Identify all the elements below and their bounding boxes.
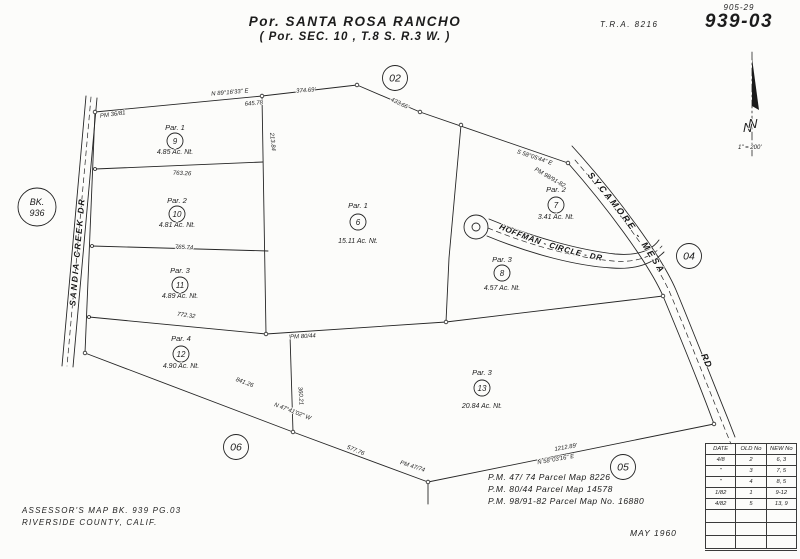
parcel-name: Par. 3: [492, 255, 513, 264]
road-sycamore-mesa-linework: [568, 146, 735, 444]
revision-cell: 4/8: [706, 455, 736, 466]
dimension-label: PM 80/44: [290, 333, 317, 340]
revision-cell-empty: [706, 523, 736, 536]
parcel-acreage: 4.57 Ac. Nt.: [484, 285, 520, 292]
dimension-label: 1212.89': [554, 443, 578, 453]
dimension-label: 360.21: [296, 387, 303, 406]
revision-col-header: NEW No: [766, 444, 796, 455]
revision-row-empty: [706, 536, 797, 550]
revision-cell-empty: [736, 536, 766, 550]
dimension-label: PM 36/81: [100, 110, 126, 120]
map-book-page-number: 939-03: [683, 11, 795, 33]
book-ref-number: 936: [29, 208, 44, 218]
parcel-name: Par. 2: [167, 196, 188, 205]
revision-cell-empty: [706, 536, 736, 550]
assessor-map-page: N N 1" = 200' Par. 194.85 Ac. Nt.Par. 21…: [0, 0, 800, 559]
parcel-number: 12: [177, 350, 186, 359]
revision-cell: 8, 5: [766, 477, 796, 488]
revision-row-empty: [706, 523, 797, 536]
parcel-number: 13: [478, 384, 487, 393]
parcel-acreage: 3.41 Ac. Nt.: [538, 214, 574, 221]
page-ref-number: 02: [389, 73, 401, 85]
revision-row: "37, 5: [706, 466, 797, 477]
revision-cell: 7, 5: [766, 466, 796, 477]
north-arrow: N N 1" = 200': [738, 52, 762, 158]
page-ref-number: 04: [683, 251, 695, 263]
dimension-label: 841.26: [235, 377, 255, 389]
dimension-label: PM 47/74: [399, 460, 426, 474]
page-ref-number: 06: [230, 442, 242, 454]
revision-cell: 5: [736, 499, 766, 510]
map-drawing: N N 1" = 200' Par. 194.85 Ac. Nt.Par. 21…: [0, 0, 800, 559]
road-name: HOFFMAN - CIRCLE - DR: [498, 222, 603, 262]
dimension-label: 645.78: [245, 100, 264, 108]
book-ref-circle: [18, 188, 56, 226]
revision-cell: 2: [736, 455, 766, 466]
parcel-acreage: 15.11 Ac. Nt.: [338, 238, 378, 245]
pm-reference-line: P.M. 80/44 Parcel Map 14578: [488, 483, 644, 495]
pm-reference-line: P.M. 98/91-82 Parcel Map No. 16880: [488, 495, 644, 507]
dimension-label: 772.32: [177, 312, 197, 321]
generated-labels: Par. 194.85 Ac. Nt.Par. 2104.81 Ac. Nt.P…: [18, 66, 714, 480]
road-name: SANDIA CREEK DR: [67, 197, 86, 306]
assessor-note: ASSESSOR'S MAP BK. 939 PG.03 RIVERSIDE C…: [22, 505, 181, 529]
parcel-number: 9: [173, 137, 178, 146]
parcel-number: 10: [173, 210, 182, 219]
dimension-label: 374.69': [296, 87, 317, 94]
revision-row: 4/826, 3: [706, 455, 797, 466]
parcel-name: Par. 4: [171, 334, 191, 343]
revision-cell: 6, 3: [766, 455, 796, 466]
parcel-name: Par. 3: [170, 266, 191, 275]
map-subtitle: ( Por. SEC. 10 , T.8 S. R.3 W. ): [205, 31, 505, 43]
north-arrow-blade: [752, 58, 759, 110]
parcel-number: 8: [500, 269, 505, 278]
dimension-label: 433.66': [389, 97, 410, 111]
assessor-note-line1: ASSESSOR'S MAP BK. 939 PG.03: [22, 505, 181, 517]
parcel-name: Par. 3: [472, 368, 493, 377]
road-name: RD: [699, 352, 714, 370]
parcel-acreage: 20.84 Ac. Nt.: [461, 403, 502, 410]
map-title: Por. SANTA ROSA RANCHO: [205, 14, 505, 29]
parcel-number: 6: [356, 218, 361, 227]
parcel-acreage: 4.89 Ac. Nt.: [162, 293, 198, 300]
parcel-number: 11: [176, 281, 184, 290]
parcel-map-references: P.M. 47/ 74 Parcel Map 8226 P.M. 80/44 P…: [488, 471, 644, 507]
revision-cell: 13, 9: [766, 499, 796, 510]
revision-col-header: DATE: [706, 444, 736, 455]
revision-cell-empty: [766, 510, 796, 523]
revision-row-empty: [706, 510, 797, 523]
dimension-label: 763.26: [173, 171, 192, 178]
revision-row: 4/82513, 9: [706, 499, 797, 510]
revision-row: "48, 5: [706, 477, 797, 488]
parcel-name: Par. 1: [165, 123, 185, 132]
revision-cell: 1/82: [706, 488, 736, 499]
dimension-label: 213.84: [268, 131, 276, 152]
map-date: MAY 1960: [630, 528, 677, 538]
north-letter: N: [748, 116, 758, 131]
map-scale: 1" = 200': [738, 145, 762, 151]
parcel-acreage: 4.81 Ac. Nt.: [159, 222, 195, 229]
revision-table-header: DATEOLD NoNEW No: [706, 444, 797, 455]
revision-cell: ": [706, 466, 736, 477]
revision-cell: 4/82: [706, 499, 736, 510]
revision-cell-empty: [706, 510, 736, 523]
revision-cell: 9-12: [766, 488, 796, 499]
revision-cell-empty: [736, 510, 766, 523]
revision-cell-empty: [766, 536, 796, 550]
dimension-label: N 89°16'33" E: [211, 88, 250, 97]
pm-reference-line: P.M. 47/ 74 Parcel Map 8226: [488, 471, 644, 483]
revision-cell: 4: [736, 477, 766, 488]
revision-cell: 3: [736, 466, 766, 477]
tax-rate-area: T.R.A. 8216: [600, 20, 658, 29]
parcel-name: Par. 1: [348, 201, 368, 210]
revision-cell: ": [706, 477, 736, 488]
parcel-number: 7: [554, 201, 559, 210]
revision-cell-empty: [766, 523, 796, 536]
revision-table: DATEOLD NoNEW No4/826, 3"37, 5"48, 51/82…: [705, 443, 797, 551]
revision-row: 1/8219-12: [706, 488, 797, 499]
revision-col-header: OLD No: [736, 444, 766, 455]
assessor-note-line2: RIVERSIDE COUNTY, CALIF.: [22, 517, 181, 529]
dimension-label: 765.74: [175, 245, 194, 252]
parcel-acreage: 4.85 Ac. Nt.: [157, 149, 193, 156]
revision-cell: 1: [736, 488, 766, 499]
parcel-acreage: 4.90 Ac. Nt.: [163, 363, 199, 370]
book-ref-label: BK.: [30, 197, 45, 207]
revision-cell-empty: [736, 523, 766, 536]
